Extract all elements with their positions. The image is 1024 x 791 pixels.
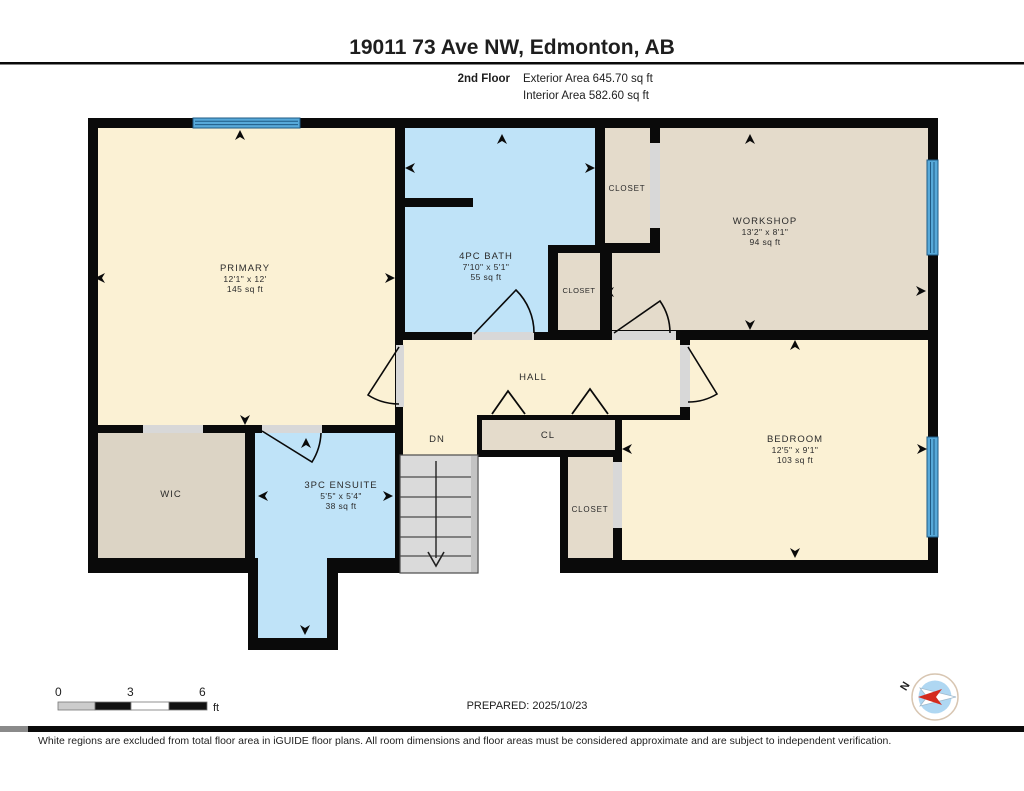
bath-area: 55 sq ft xyxy=(470,272,501,282)
footer-divider xyxy=(0,726,1024,732)
closet-bedroom-label: CLOSET xyxy=(572,505,609,514)
footer-divider-end xyxy=(0,726,28,732)
bedroom-dims: 12'5" x 9'1" xyxy=(772,445,819,455)
bedroom-area: 103 sq ft xyxy=(777,455,813,465)
workshop-dims: 13'2" x 8'1" xyxy=(742,227,789,237)
scale-tick-0: 0 xyxy=(55,685,62,699)
exterior-area-label: Exterior Area 645.70 sq ft xyxy=(523,73,654,85)
page-title: 19011 73 Ave NW, Edmonton, AB xyxy=(349,36,675,59)
window-primary-top xyxy=(193,118,300,128)
floor-plan-page: 19011 73 Ave NW, Edmonton, AB 2nd Floor … xyxy=(0,0,1024,791)
workshop-name: WORKSHOP xyxy=(733,216,797,227)
dn-label: DN xyxy=(429,434,445,445)
room-workshop xyxy=(660,128,928,330)
floor-label: 2nd Floor xyxy=(458,73,511,85)
primary-name: PRIMARY xyxy=(220,263,270,274)
ensuite-area: 38 sq ft xyxy=(325,501,356,511)
stairs xyxy=(400,455,478,573)
closet-bath-mid-label: CLOSET xyxy=(562,286,595,295)
interior-area-label: Interior Area 582.60 sq ft xyxy=(523,90,650,102)
bath-name: 4PC BATH xyxy=(459,251,513,262)
scale-bar: 0 3 6 ft xyxy=(55,685,219,714)
bath-dims: 7'10" x 5'1" xyxy=(463,262,510,272)
scale-tick-6: 6 xyxy=(199,685,206,699)
room-bath xyxy=(405,128,595,245)
ensuite-name: 3PC ENSUITE xyxy=(304,480,377,491)
scale-unit: ft xyxy=(213,702,219,714)
ensuite-dims: 5'5" x 5'4" xyxy=(320,491,362,501)
wic-label: WIC xyxy=(160,489,181,500)
room-ensuite-extension xyxy=(258,558,327,638)
primary-dims: 12'1" x 12' xyxy=(223,274,266,284)
bath-wall-stub xyxy=(405,198,473,207)
bedroom-name: BEDROOM xyxy=(767,434,823,445)
scale-tick-3: 3 xyxy=(127,685,134,699)
compass-north-label: N xyxy=(898,680,912,693)
closet-bath-top-label: CLOSET xyxy=(609,184,646,193)
window-bedroom-right xyxy=(927,437,938,537)
header-divider xyxy=(0,62,1024,65)
cl-label: CL xyxy=(541,430,555,441)
compass: N xyxy=(898,674,958,720)
primary-area: 145 sq ft xyxy=(227,284,263,294)
hall-label: HALL xyxy=(519,372,547,383)
prepared-date: PREPARED: 2025/10/23 xyxy=(467,700,588,712)
window-workshop-right xyxy=(927,160,938,255)
workshop-area: 94 sq ft xyxy=(749,237,780,247)
floor-plan-canvas: 19011 73 Ave NW, Edmonton, AB 2nd Floor … xyxy=(0,0,1024,791)
disclaimer-text: White regions are excluded from total fl… xyxy=(38,735,891,747)
